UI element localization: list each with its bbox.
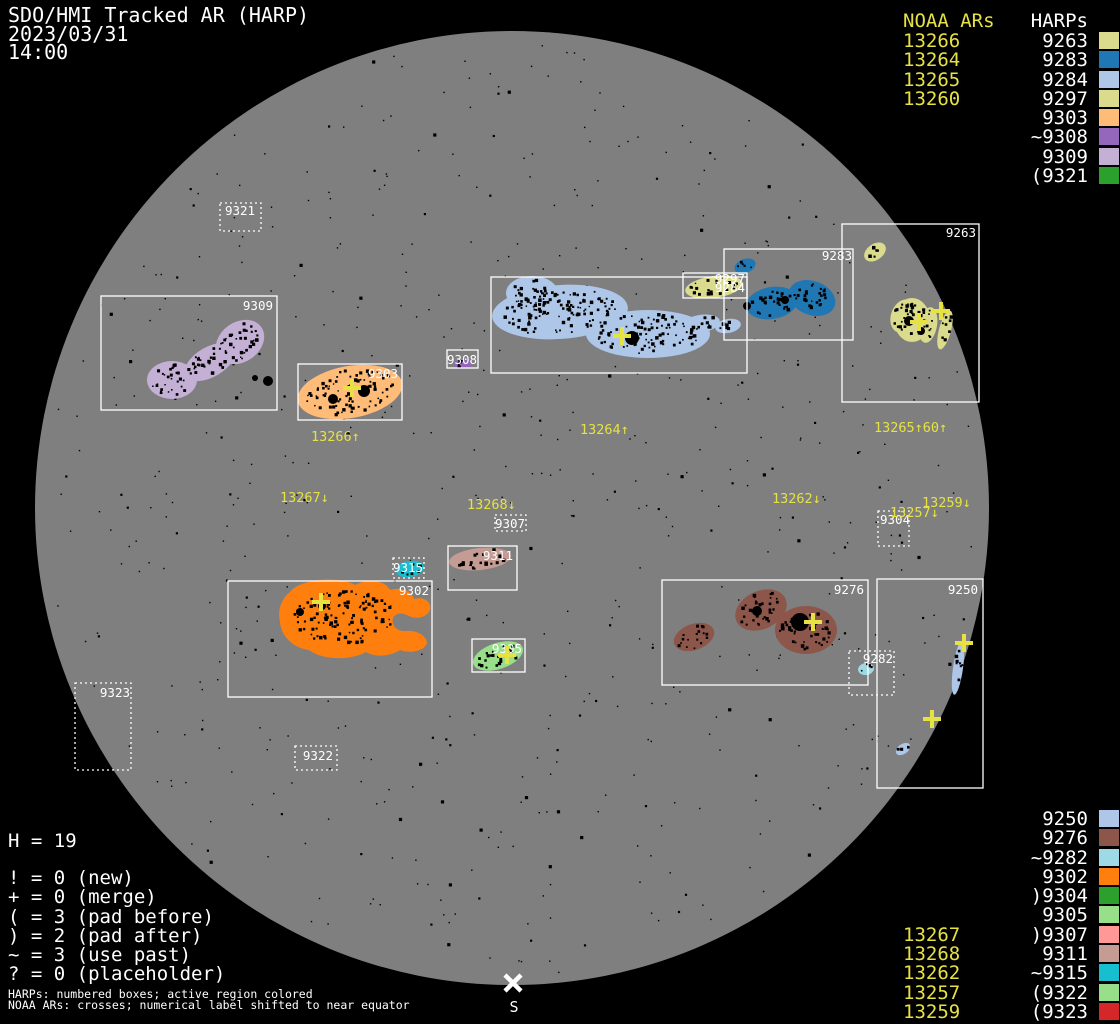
harp-box-label-9309: 9309	[243, 298, 273, 313]
harp-box-label-9283: 9283	[822, 248, 852, 263]
harp-box-label-9323: 9323	[100, 685, 130, 700]
legend-harp-number: 9283	[1042, 49, 1088, 71]
legend-color-swatch	[1099, 1003, 1119, 1020]
legend-row-9305: 9305	[900, 904, 1120, 923]
legend-row-9311: 132689311	[900, 943, 1120, 962]
legend-row-9282: ~9282	[900, 847, 1120, 866]
harp-box-label-9311: 9311	[483, 548, 513, 563]
legend-color-swatch	[1099, 926, 1119, 943]
legend-harp-number: ~9315	[1031, 962, 1088, 984]
ar-label-13268: 13268↓	[467, 497, 516, 513]
ar-label-13262: 13262↓	[772, 491, 821, 507]
harp-box-label-9307: 9307	[495, 516, 525, 531]
legend-row-9302: 9302	[900, 866, 1120, 885]
legend-color-swatch	[1099, 810, 1119, 827]
harp-box-label-9250: 9250	[948, 582, 978, 597]
flag-line: ? = 0 (placeholder)	[8, 965, 225, 984]
legend-color-swatch	[1099, 887, 1119, 904]
ar-label-13266: 13266↑	[311, 429, 360, 445]
harp-box-label-9263: 9263	[946, 225, 976, 240]
legend-harp-number: ~9308	[1031, 126, 1088, 148]
south-pole-label: S	[509, 998, 518, 1016]
legend-color-swatch	[1099, 906, 1119, 923]
harps-header: HARPs	[1031, 10, 1088, 32]
legend-color-swatch	[1099, 868, 1119, 885]
legend-color-swatch	[1099, 167, 1119, 184]
legend-row-9322: 13257(9322	[900, 982, 1120, 1001]
legend-row-9297: 132609297	[900, 88, 1120, 107]
legend-row-9304: )9304	[900, 885, 1120, 904]
ar-label-13264: 13264↑	[580, 422, 629, 438]
harp-box-label-9297: 9297	[715, 271, 745, 286]
legend-row-9250: 9250	[900, 808, 1120, 827]
harp-box-label-9276: 9276	[834, 582, 864, 597]
legend-color-swatch	[1099, 71, 1119, 88]
legend-harp-number: (9321	[1031, 165, 1088, 187]
legend-color-swatch	[1099, 148, 1119, 165]
legend-harp-number: 9276	[1042, 827, 1088, 849]
legend-row-9323: 13259(9323	[900, 1001, 1120, 1020]
legend-row-9276: 9276	[900, 827, 1120, 846]
legend-row-9307: 13267)9307	[900, 924, 1120, 943]
legend-color-swatch	[1099, 849, 1119, 866]
legend-row-9303: 9303	[900, 107, 1120, 126]
harp-tracking-plot: 9321930993039308928492979283926393049307…	[0, 0, 1120, 1024]
legend-color-swatch	[1099, 109, 1119, 126]
harp-box-label-9321: 9321	[225, 203, 255, 218]
legend-row-9284: 132659284	[900, 69, 1120, 88]
legend-noaa-number: 13264	[903, 49, 960, 71]
legend-row-9308: ~9308	[900, 126, 1120, 145]
legend-color-swatch	[1099, 51, 1119, 68]
flag-legend: ! = 0 (new)+ = 0 (merge)( = 3 (pad befor…	[8, 869, 225, 985]
legend-row-9283: 132649283	[900, 49, 1120, 68]
legend-noaa-number: 13259	[903, 1001, 960, 1023]
legend-color-swatch	[1099, 964, 1119, 981]
harp-box-label-9322: 9322	[303, 748, 333, 763]
footer-notes: HARPs: numbered boxes; active region col…	[8, 989, 410, 1012]
legend-color-swatch	[1099, 32, 1119, 49]
ar-label-1326560: 13265↑60↑	[874, 420, 947, 436]
legend-color-swatch	[1099, 945, 1119, 962]
legend-row-9321: (9321	[900, 165, 1120, 184]
harp-box-label-9282: 9282	[863, 651, 893, 666]
legend-color-swatch	[1099, 90, 1119, 107]
legend-row-9263: 132669263	[900, 30, 1120, 49]
legend-color-swatch	[1099, 829, 1119, 846]
flag-line: + = 0 (merge)	[8, 888, 225, 907]
harp-box-label-9302: 9302	[399, 583, 429, 598]
ar-label-13259: 13259↓	[922, 495, 971, 511]
legend-row-9309: 9309	[900, 146, 1120, 165]
legend-noaa-number: 13262	[903, 962, 960, 984]
harp-box-label-9303: 9303	[368, 366, 398, 381]
harp-box-label-9308: 9308	[447, 352, 477, 367]
title-block: SDO/HMI Tracked AR (HARP)2023/03/3114:00	[8, 6, 309, 62]
legend-header-row: NOAA ARs HARPs	[900, 10, 1120, 29]
legend-harp-number: (9323	[1031, 1001, 1088, 1023]
time-label: 14:00	[8, 40, 68, 64]
harp-box-label-9315: 9315	[393, 560, 423, 575]
harp-count: H = 19	[8, 830, 77, 852]
legend-harp-number: 9305	[1042, 904, 1088, 926]
legend-color-swatch	[1099, 128, 1119, 145]
noaa-ars-header: NOAA ARs	[903, 10, 995, 32]
flag-line: ( = 3 (pad before)	[8, 908, 225, 927]
legend-color-swatch	[1099, 984, 1119, 1001]
ar-label-13267: 13267↓	[280, 490, 329, 506]
legend-row-9315: 13262~9315	[900, 962, 1120, 981]
footer-line2: NOAA ARs: crosses; numerical label shift…	[8, 998, 410, 1012]
